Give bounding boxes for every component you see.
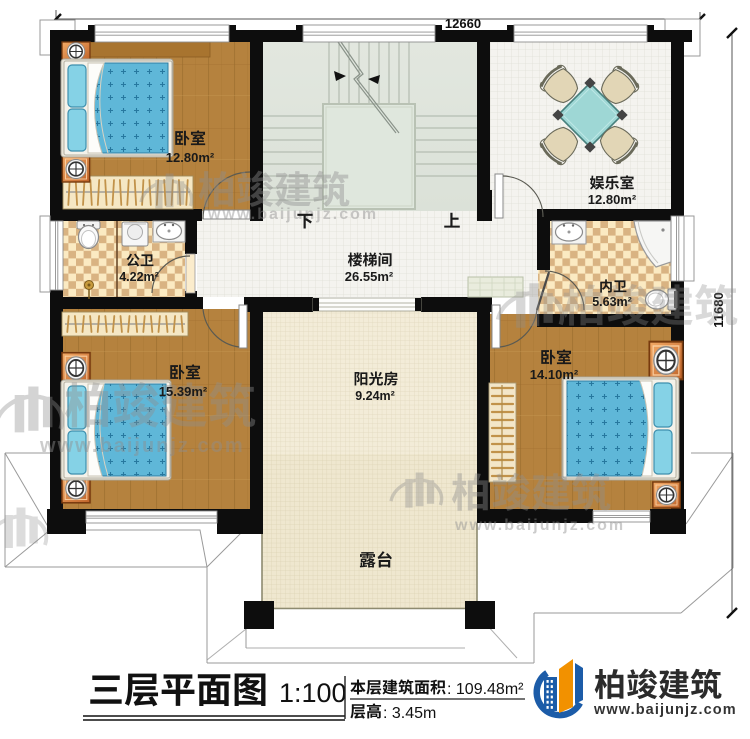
svg-text:12.80m²: 12.80m² <box>166 150 215 165</box>
svg-text:www.baijunjz.com: www.baijunjz.com <box>593 702 737 718</box>
svg-text:12.80m²: 12.80m² <box>588 192 637 207</box>
svg-text:: 3.45m: : 3.45m <box>383 705 436 722</box>
svg-text:14.10m²: 14.10m² <box>530 367 579 382</box>
svg-text:15.39m²: 15.39m² <box>159 384 208 399</box>
svg-text:: 109.48m²: : 109.48m² <box>447 681 524 698</box>
svg-text:www.baijunjz.com: www.baijunjz.com <box>39 435 245 457</box>
svg-text:www.baijunjz.com: www.baijunjz.com <box>207 206 378 223</box>
svg-text:www.baijunjz.com: www.baijunjz.com <box>454 517 625 534</box>
svg-text:9.24m²: 9.24m² <box>355 389 395 403</box>
svg-text:1:100: 1:100 <box>279 678 347 708</box>
svg-text:4.22m²: 4.22m² <box>119 270 159 284</box>
svg-text:5.63m²: 5.63m² <box>592 295 632 309</box>
svg-text:12660: 12660 <box>445 16 481 31</box>
svg-text:26.55m²: 26.55m² <box>345 269 394 284</box>
